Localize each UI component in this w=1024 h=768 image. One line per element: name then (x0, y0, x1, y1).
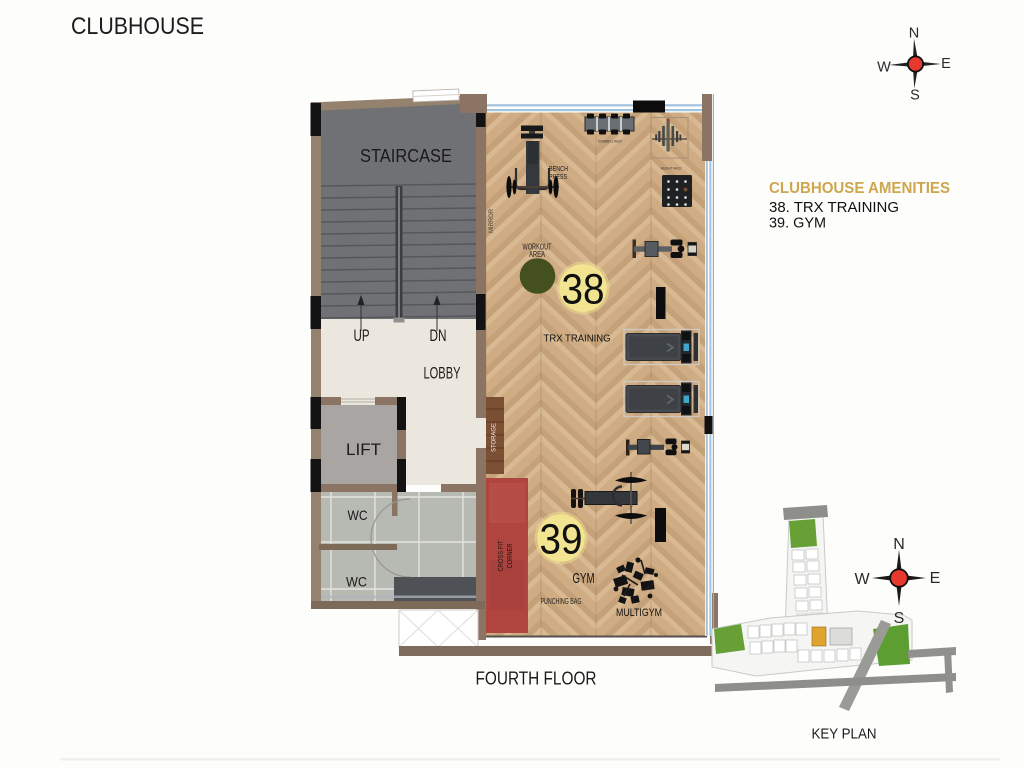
svg-text:PUNCHING BAG: PUNCHING BAG (541, 597, 582, 606)
svg-text:WC: WC (346, 574, 367, 590)
svg-text:38: 38 (562, 267, 605, 314)
svg-text:STORAGE: STORAGE (491, 422, 498, 452)
svg-text:GYM: GYM (573, 571, 595, 587)
svg-text:LIFT: LIFT (346, 440, 381, 459)
svg-text:MIRROR: MIRROR (488, 209, 495, 233)
svg-text:FOURTH FLOOR: FOURTH FLOOR (476, 669, 597, 689)
svg-text:PRESS: PRESS (549, 174, 567, 181)
svg-text:WC: WC (348, 507, 368, 523)
svg-text:WEIGHT RACK: WEIGHT RACK (661, 166, 682, 171)
svg-text:E: E (941, 56, 951, 72)
svg-text:S: S (910, 88, 920, 104)
svg-text:39. GYM: 39. GYM (769, 215, 826, 232)
svg-text:S: S (894, 610, 905, 627)
svg-text:DN: DN (430, 327, 447, 345)
svg-text:CORNER: CORNER (507, 544, 514, 569)
svg-text:BENCH: BENCH (549, 166, 568, 173)
svg-text:38. TRX TRAINING: 38. TRX TRAINING (769, 199, 899, 216)
svg-text:N: N (909, 26, 919, 42)
svg-text:39: 39 (540, 517, 583, 564)
svg-text:DUMBBELL RACK: DUMBBELL RACK (598, 139, 622, 144)
svg-text:AREA: AREA (529, 250, 545, 259)
svg-text:CROSS FIT: CROSS FIT (498, 540, 505, 572)
svg-text:LOBBY: LOBBY (424, 365, 461, 383)
svg-text:TRX TRAINING: TRX TRAINING (544, 333, 611, 345)
svg-text:MULTIGYM: MULTIGYM (616, 607, 662, 619)
svg-text:N: N (893, 536, 905, 553)
svg-text:W: W (877, 60, 891, 76)
svg-text:CLUBHOUSE: CLUBHOUSE (71, 13, 204, 40)
svg-text:STAIRCASE: STAIRCASE (360, 146, 452, 166)
svg-text:KEY PLAN: KEY PLAN (812, 726, 877, 743)
svg-text:UP: UP (354, 327, 370, 345)
svg-text:W: W (854, 571, 870, 588)
svg-text:E: E (930, 570, 941, 587)
svg-text:CLUBHOUSE AMENITIES: CLUBHOUSE AMENITIES (769, 180, 950, 197)
